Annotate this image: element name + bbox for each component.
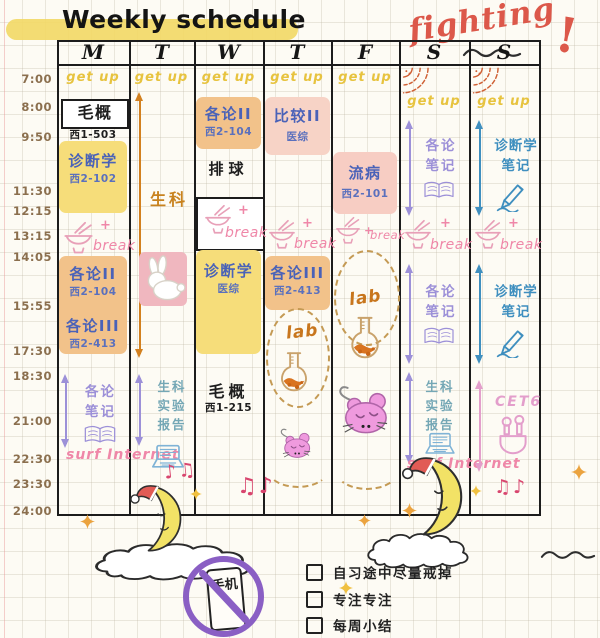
time-label: 23:30 (0, 477, 55, 491)
break-label: break (430, 237, 472, 253)
time-label: 8:00 (0, 100, 55, 114)
time-label: 17:30 (0, 344, 55, 358)
time-label: 15:55 (0, 299, 55, 313)
checklist-item: 自习途中尽量戒掉 (306, 562, 453, 582)
day-header-wed: W (194, 41, 263, 64)
flask-icon (347, 310, 383, 370)
tue-night-task: 生科实验报告 (156, 378, 188, 434)
day-header-sun: S (469, 41, 539, 64)
flask-icon (277, 346, 311, 402)
checklist-label: 每周小结 (333, 615, 393, 635)
course-title: 各论II (196, 97, 261, 124)
rice-bowl-icon (334, 216, 362, 246)
open-book-icon (423, 326, 455, 347)
sleeping-moon-icon (390, 450, 470, 542)
break-label: break (370, 228, 405, 242)
course-title: 流病 (333, 152, 397, 183)
rice-bowl-icon (403, 219, 433, 251)
time-span-arrow (479, 384, 481, 468)
music-notes-icon: ♫♪ (494, 476, 527, 498)
wed-sport: 排球 (196, 158, 261, 179)
course-location: 医综 (196, 281, 261, 296)
time-label: 9:50 (0, 130, 55, 144)
column-divider (331, 40, 333, 514)
day-header-sat: S (399, 41, 469, 64)
time-label: 12:15 (0, 204, 55, 218)
course-location: 西2-101 (333, 183, 397, 201)
wed-class1-block: 各论II 西2-104 (196, 97, 261, 149)
day-header-fri: F (331, 41, 399, 64)
checklist-item: 每周小结 (306, 615, 393, 635)
no-phone-icon: 手机 (183, 556, 265, 638)
column-divider (399, 40, 401, 514)
break-label: break (225, 225, 267, 241)
page-title: Weekly schedule (62, 5, 306, 34)
day-header-tue: T (129, 41, 194, 64)
time-span-arrow (479, 268, 481, 360)
mon-class34-block: 各论II 西2-104 各论III 西2-413 (59, 256, 127, 354)
wed-night-course: 毛概 (196, 378, 261, 402)
break-label: break (294, 236, 336, 252)
time-span-arrow (139, 96, 141, 354)
corner-swirl-icon (471, 66, 503, 96)
plus-sign: + (440, 216, 451, 231)
time-label: 21:00 (0, 414, 55, 428)
course-title: 各论III (59, 299, 127, 336)
plus-sign: + (302, 216, 313, 231)
star-icon (470, 485, 482, 497)
checklist-item: 专注专注 (306, 589, 393, 609)
get-up-wed: get up (194, 70, 263, 85)
course-title: 各论II (59, 256, 127, 284)
course-location: 医综 (265, 126, 330, 144)
star-icon (358, 514, 371, 527)
mon-class2-block: 诊断学 西2-102 (59, 141, 127, 213)
break-label: break (500, 237, 542, 253)
course-location: 西2-104 (59, 284, 127, 299)
time-span-arrow (139, 378, 141, 442)
course-title: 毛概 (63, 101, 127, 125)
time-span-arrow (409, 268, 411, 360)
star-icon (571, 464, 587, 480)
weekly-schedule-page: Weekly schedule fighting ! M T W T F S S… (0, 0, 600, 638)
sat-night-task: 生科实验报告 (425, 378, 455, 434)
rice-bowl-icon (473, 219, 503, 251)
notebook-margin-line (4, 0, 5, 638)
sleeping-moon-icon (118, 480, 190, 556)
course-title: 诊断学 (196, 250, 261, 281)
get-up-tue: get up (129, 70, 194, 85)
wed-break-box: + break (196, 197, 265, 251)
sun-pm-notes: 诊断学笔记 (493, 282, 539, 323)
checklist-label: 自习途中尽量戒掉 (333, 562, 453, 582)
column-divider (469, 40, 471, 514)
thu-class2-block: 各论III 西2-413 (265, 256, 330, 310)
course-location: 西1-503 (61, 127, 125, 142)
lab-label: lab (285, 320, 319, 343)
mouse-sticker-icon (333, 386, 395, 436)
checkbox-icon (306, 617, 323, 634)
rice-bowl-icon (267, 219, 297, 251)
rabbit-sticker-icon (139, 252, 187, 306)
rice-bowl-icon (62, 221, 95, 256)
time-label: 11:30 (0, 184, 55, 198)
time-label: 18:30 (0, 369, 55, 383)
open-book-icon (423, 180, 455, 201)
star-icon (190, 488, 202, 500)
break-label: break (93, 238, 135, 254)
sun-night-task: CET6 (495, 394, 542, 410)
plus-sign: + (238, 203, 249, 218)
time-label: 22:30 (0, 452, 55, 466)
day-header-mon: M (57, 41, 129, 64)
get-up-sun: get up (469, 94, 539, 109)
earbuds-icon (495, 414, 531, 460)
time-span-arrow (409, 376, 411, 460)
star-icon (80, 514, 95, 529)
corner-swirl-icon (401, 66, 433, 96)
time-span-arrow (479, 124, 481, 212)
plus-sign: + (100, 218, 111, 233)
fri-class1-block: 流病 西2-101 (333, 152, 397, 214)
time-label: 14:05 (0, 250, 55, 264)
open-book-icon (83, 424, 117, 446)
mon-class1-box: 毛概 (61, 99, 129, 129)
column-divider (129, 40, 131, 514)
checkbox-icon (306, 564, 323, 581)
course-location: 西2-102 (59, 171, 127, 186)
time-span-arrow (409, 124, 411, 212)
thu-class1-block: 比较II 医综 (265, 97, 330, 155)
time-label: 13:15 (0, 229, 55, 243)
get-up-mon: get up (57, 70, 129, 85)
pencil-icon (494, 328, 528, 358)
course-title: 比较II (265, 97, 330, 126)
get-up-sat: get up (399, 94, 469, 109)
day-header-thu: T (263, 41, 331, 64)
course-location: 西2-413 (265, 283, 330, 298)
plus-sign: + (508, 216, 519, 231)
get-up-thu: get up (263, 70, 331, 85)
tue-day-activity: 生科 (150, 186, 188, 210)
course-location: 西2-413 (59, 336, 127, 351)
wavy-doodle-icon (540, 548, 596, 562)
mon-night-notes: 各论笔记 (84, 382, 117, 423)
checkbox-icon (306, 591, 323, 608)
course-title: 各论III (265, 256, 330, 283)
course-location: 西2-104 (196, 124, 261, 139)
time-span-arrow (65, 378, 67, 444)
sat-pm-notes: 各论笔记 (425, 282, 457, 323)
time-label: 24:00 (0, 504, 55, 518)
pencil-icon (494, 182, 528, 212)
course-location: 西1-215 (196, 400, 261, 415)
time-label: 7:00 (0, 72, 55, 86)
checklist-label: 专注专注 (333, 589, 393, 609)
get-up-fri: get up (331, 70, 399, 85)
wed-class2-block: 诊断学 医综 (196, 250, 261, 354)
sun-am-notes: 诊断学笔记 (493, 136, 539, 177)
course-title: 诊断学 (59, 141, 127, 171)
dashed-arc (266, 448, 330, 488)
sat-am-notes: 各论笔记 (425, 136, 457, 177)
